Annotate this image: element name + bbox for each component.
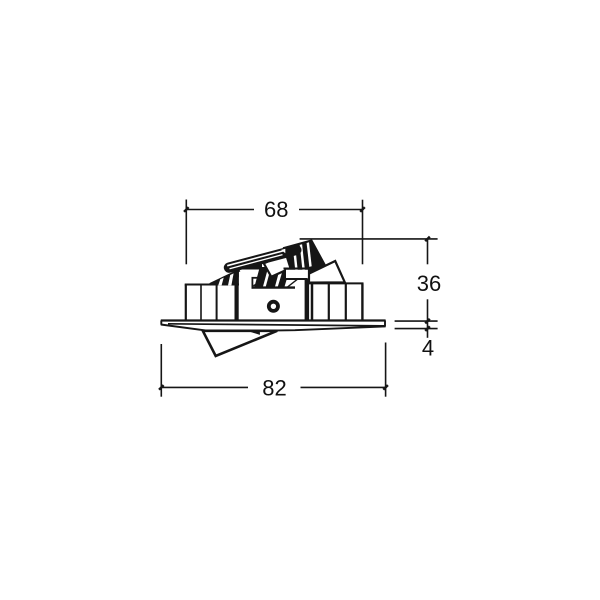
svg-text:82: 82 xyxy=(262,375,286,400)
svg-text:4: 4 xyxy=(422,335,434,360)
svg-text:68: 68 xyxy=(264,197,288,222)
svg-text:36: 36 xyxy=(417,271,441,296)
